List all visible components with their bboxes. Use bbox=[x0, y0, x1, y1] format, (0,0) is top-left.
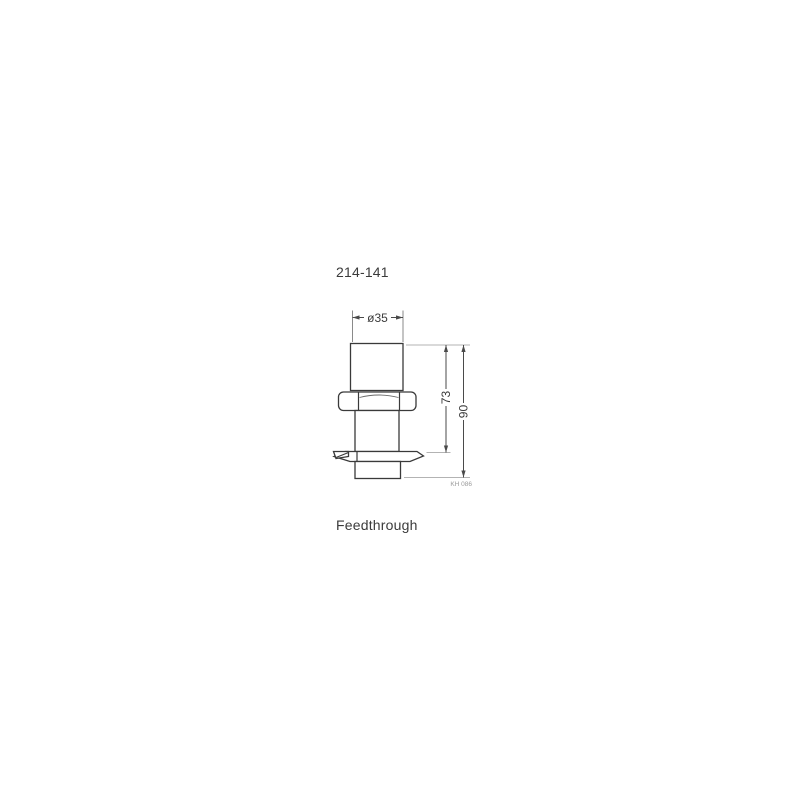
arrow-down-icon bbox=[461, 471, 465, 478]
arrow-right-icon bbox=[396, 315, 403, 319]
bottom-tube bbox=[355, 462, 401, 479]
caption-label: Feedthrough bbox=[336, 517, 418, 533]
catalog-page: 214-141 ø35 73 bbox=[0, 0, 799, 800]
drawing-reference-code: KH 086 bbox=[450, 481, 472, 488]
arrow-left-icon bbox=[353, 315, 360, 319]
top-cylinder bbox=[351, 344, 404, 391]
arrow-up-icon bbox=[461, 345, 465, 352]
diameter-dimension-label: ø35 bbox=[367, 311, 388, 325]
feedthrough-technical-drawing: ø35 73 90 KH 086 bbox=[300, 290, 500, 500]
height-90-dimension-label: 90 bbox=[457, 405, 471, 419]
height-73-dimension-label: 73 bbox=[439, 391, 453, 405]
part-number-label: 214-141 bbox=[336, 264, 389, 280]
middle-cylinder bbox=[355, 411, 399, 452]
arrow-down-icon bbox=[444, 446, 448, 453]
arrow-up-icon bbox=[444, 345, 448, 352]
